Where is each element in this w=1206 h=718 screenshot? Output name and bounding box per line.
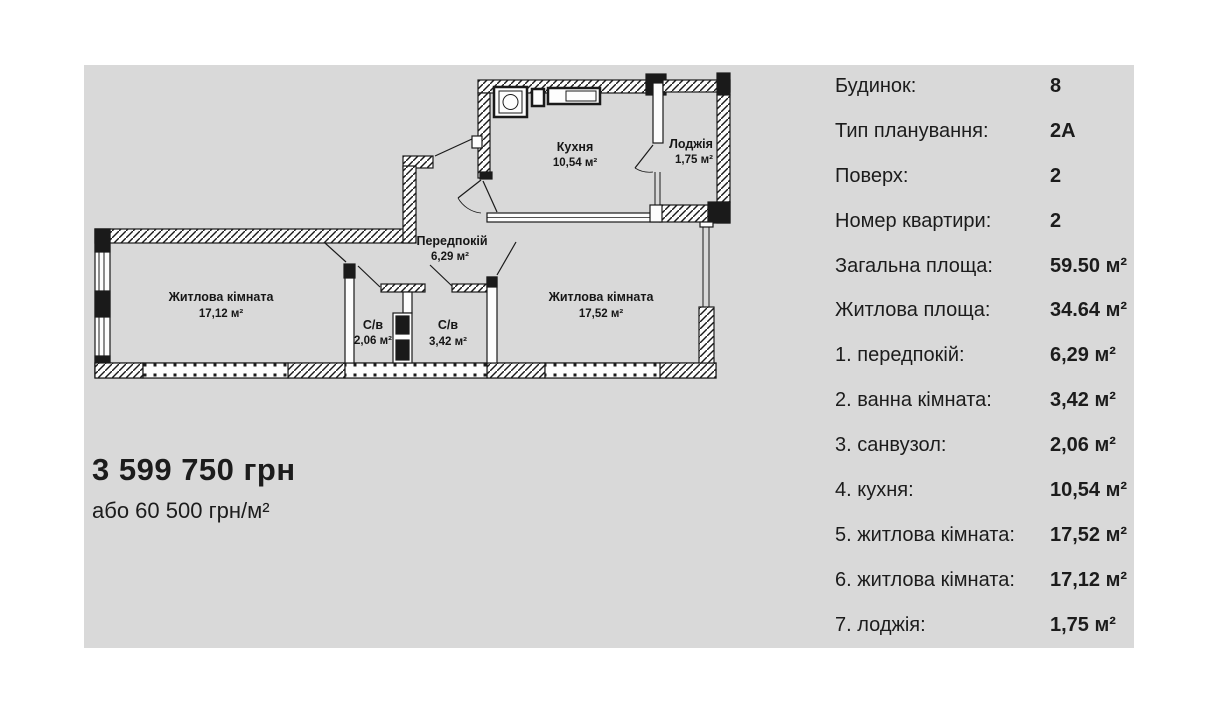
detail-label: Будинок: [835,75,1050,98]
detail-label: Номер квартири: [835,210,1050,233]
detail-row-building: Будинок: 8 [835,64,1137,109]
detail-label: Поверх: [835,165,1050,188]
detail-label: Загальна площа: [835,255,1050,278]
detail-label: 3. санвузол: [835,434,1050,457]
detail-label: Тип планування: [835,120,1050,143]
detail-row-layout-type: Тип планування: 2А [835,109,1137,154]
detail-row-living-area: Житлова площа: 34.64 м² [835,288,1137,333]
detail-value: 2 [1050,165,1061,188]
detail-value: 34.64 м² [1050,299,1127,322]
detail-value: 17,52 м² [1050,524,1127,547]
detail-row-hallway: 1. передпокій: 6,29 м² [835,333,1137,378]
price: 3 599 750 грн [92,452,296,488]
detail-value: 8 [1050,75,1061,98]
detail-row-apartment-number: Номер квартири: 2 [835,199,1137,244]
detail-label: 7. лоджія: [835,614,1050,637]
detail-value: 3,42 м² [1050,389,1116,412]
detail-row-kitchen: 4. кухня: 10,54 м² [835,468,1137,513]
detail-label: 1. передпокій: [835,344,1050,367]
detail-row-total-area: Загальна площа: 59.50 м² [835,244,1137,289]
detail-value: 17,12 м² [1050,569,1127,592]
detail-value: 6,29 м² [1050,344,1116,367]
price-per-m2: або 60 500 грн/м² [92,498,296,524]
detail-label: 2. ванна кімната: [835,389,1050,412]
detail-label: 4. кухня: [835,479,1050,502]
detail-row-bathroom: 2. ванна кімната: 3,42 м² [835,378,1137,423]
detail-label: 6. житлова кімната: [835,569,1050,592]
detail-row-living-room-2: 6. житлова кімната: 17,12 м² [835,558,1137,603]
detail-row-floor: Поверх: 2 [835,154,1137,199]
detail-row-loggia: 7. лоджія: 1,75 м² [835,603,1137,648]
page: Кухня 10,54 м² Лоджія 1,75 м² Передпокій… [0,0,1206,718]
price-block: 3 599 750 грн або 60 500 грн/м² [92,452,296,524]
detail-label: Житлова площа: [835,299,1050,322]
details-list: Будинок: 8 Тип планування: 2А Поверх: 2 … [835,64,1137,648]
detail-value: 2А [1050,120,1076,143]
detail-row-wc: 3. санвузол: 2,06 м² [835,423,1137,468]
detail-value: 2,06 м² [1050,434,1116,457]
detail-value: 59.50 м² [1050,255,1127,278]
detail-row-living-room-1: 5. житлова кімната: 17,52 м² [835,513,1137,558]
detail-value: 1,75 м² [1050,614,1116,637]
detail-value: 10,54 м² [1050,479,1127,502]
detail-label: 5. житлова кімната: [835,524,1050,547]
detail-value: 2 [1050,210,1061,233]
